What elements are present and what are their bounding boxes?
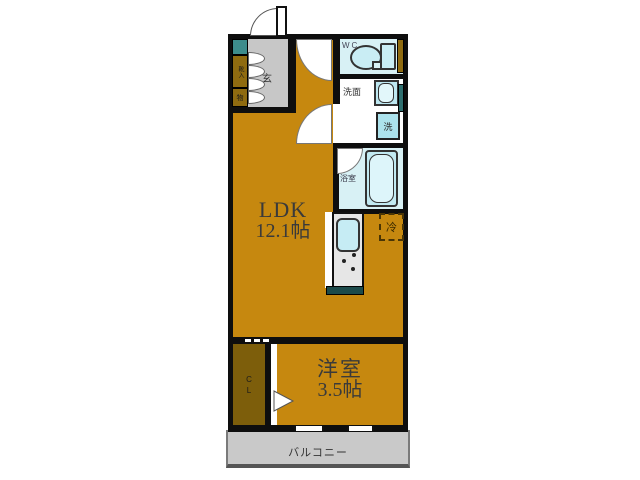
kitchen-sink-icon bbox=[336, 218, 360, 252]
washroom-label: 洗面 bbox=[343, 85, 361, 98]
door-direction-icon bbox=[273, 390, 295, 417]
toilet-icon bbox=[372, 61, 382, 70]
kitchen-passage bbox=[325, 212, 332, 288]
shoe-cabinet-label: 靴入 bbox=[237, 66, 243, 78]
pipe-space-box bbox=[232, 39, 248, 55]
wall bbox=[228, 107, 296, 113]
entrance-label: 玄 bbox=[262, 70, 278, 85]
wall-opening-mark bbox=[263, 339, 269, 342]
entrance-door-swing-icon bbox=[250, 8, 278, 36]
ldk-size: 12.1帖 bbox=[246, 221, 320, 242]
closet-label: CL bbox=[245, 375, 254, 397]
window-icon bbox=[294, 426, 324, 431]
closet: CL bbox=[233, 344, 265, 427]
ldk-room-label: LDK 12.1帖 bbox=[246, 198, 320, 242]
washer-label: 洗 bbox=[383, 120, 392, 133]
stove-burner-icon bbox=[351, 267, 355, 271]
wall bbox=[333, 34, 340, 104]
storage-box: 物 bbox=[232, 88, 248, 107]
wall-opening-mark bbox=[254, 339, 260, 342]
western-room-label: 洋室 3.5帖 bbox=[303, 358, 377, 401]
balcony-label: バルコニー bbox=[226, 444, 410, 460]
bathtub-icon bbox=[369, 154, 394, 203]
ldk-name: LDK bbox=[246, 198, 320, 221]
washing-machine-icon: 洗 bbox=[376, 112, 400, 140]
window-icon bbox=[347, 426, 374, 431]
kitchen-counter-base bbox=[326, 286, 364, 295]
entrance-door-leaf-icon bbox=[276, 6, 287, 37]
pipe-space-strip bbox=[398, 84, 404, 112]
wall-opening-mark bbox=[245, 339, 251, 342]
refrigerator-label: 冷 bbox=[386, 219, 397, 235]
pipe-space-strip bbox=[397, 39, 404, 73]
floor-plan: バルコニー 靴入 物 玄 WC 洗面 洗 浴室 bbox=[0, 0, 640, 480]
stove-burner-icon bbox=[352, 253, 356, 257]
wall bbox=[288, 34, 296, 113]
toilet-icon bbox=[380, 43, 396, 70]
refrigerator-space: 冷 bbox=[379, 213, 404, 241]
western-room-size: 3.5帖 bbox=[303, 380, 377, 401]
stove-burner-icon bbox=[342, 259, 346, 263]
western-room-name: 洋室 bbox=[303, 358, 377, 380]
bathroom-label: 浴室 bbox=[340, 173, 356, 184]
storage-label: 物 bbox=[237, 93, 244, 103]
door-opening bbox=[333, 104, 340, 144]
sink-icon bbox=[378, 83, 394, 103]
shoe-cabinet: 靴入 bbox=[232, 55, 248, 88]
